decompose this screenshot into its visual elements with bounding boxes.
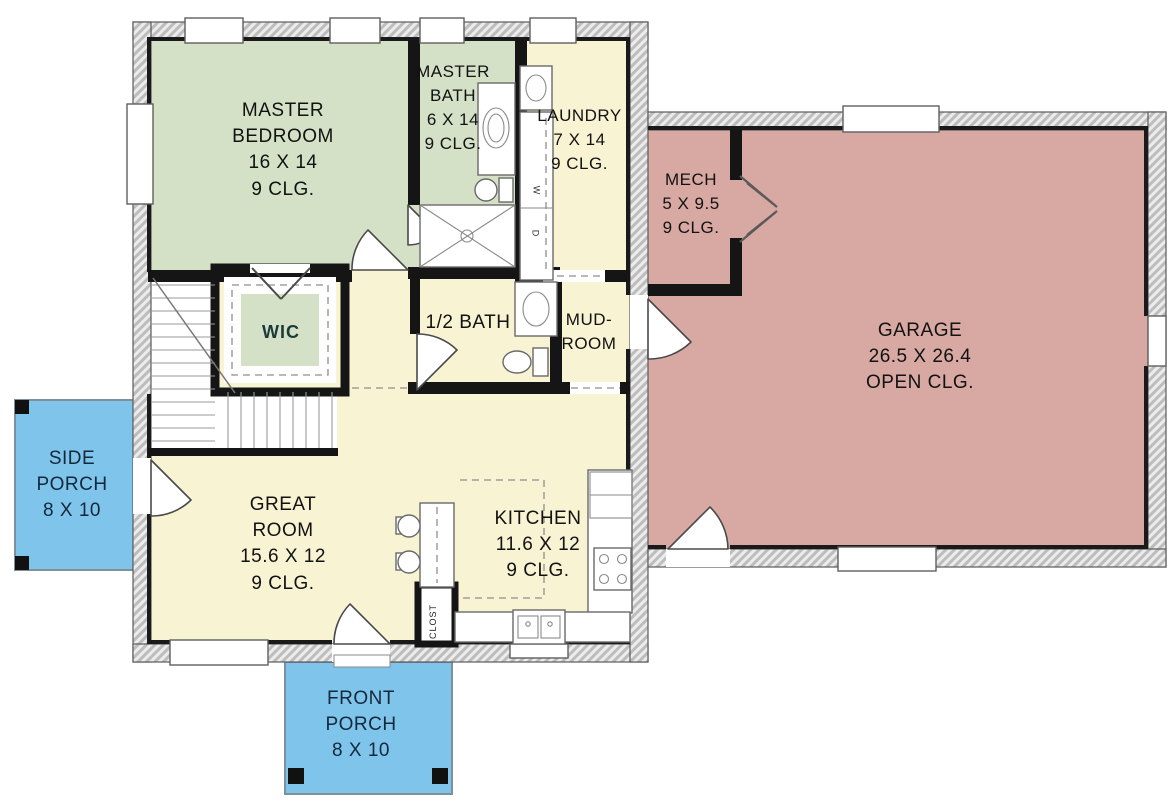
label-great-room: GREAT ROOM 15.6 X 12 9 CLG.	[198, 492, 368, 597]
wall-halfbath-bottom	[408, 382, 558, 394]
master-bath-toilet	[475, 179, 497, 201]
label-wic: WIC	[250, 320, 312, 345]
label-dryer: D	[530, 230, 540, 237]
window-laundry	[530, 18, 576, 43]
floor-plan: MASTER BEDROOM 16 X 14 9 CLG. MASTER BAT…	[0, 0, 1172, 800]
label-kitchen: KITCHEN 11.6 X 12 9 CLG.	[463, 506, 613, 585]
window-bedroom-2	[330, 18, 380, 43]
wall-mech-bottom	[648, 284, 742, 296]
window-bedroom-1	[185, 18, 243, 43]
stool-2	[398, 551, 420, 573]
label-closet: CLOST	[428, 593, 438, 639]
label-front-porch: FRONT PORCH 8 X 10	[285, 686, 437, 765]
half-bath-toilet	[503, 351, 531, 373]
label-master-bath: MASTER BATH 6 X 14 9 CLG.	[413, 60, 493, 157]
front-door-threshold	[334, 655, 390, 667]
kitchen-sink	[513, 610, 565, 644]
label-master-bedroom: MASTER BEDROOM 16 X 14 9 CLG.	[195, 98, 371, 203]
label-laundry: LAUNDRY 7 X 14 9 CLG.	[527, 104, 632, 176]
wall-mech-right-lower	[730, 238, 742, 292]
wall-stair-edge	[148, 448, 338, 456]
label-side-porch: SIDE PORCH 8 X 10	[22, 446, 122, 525]
label-garage: GARAGE 26.5 X 26.4 OPEN CLG.	[810, 318, 1030, 397]
label-half-bath: 1/2 BATH	[418, 310, 518, 336]
label-mech: MECH 5 X 9.5 9 CLG.	[645, 168, 737, 240]
window-bedroom-left	[127, 104, 153, 204]
window-bath	[420, 18, 464, 43]
stool-1	[398, 515, 420, 537]
window-garage-bottom	[838, 547, 936, 571]
garage-side-opening	[1148, 316, 1166, 366]
wic-door-gap	[250, 264, 310, 273]
label-mud-room: MUD- ROOM	[550, 308, 628, 356]
window-great-room	[170, 640, 268, 665]
window-garage-top	[843, 106, 939, 132]
label-washer: W	[531, 186, 541, 195]
